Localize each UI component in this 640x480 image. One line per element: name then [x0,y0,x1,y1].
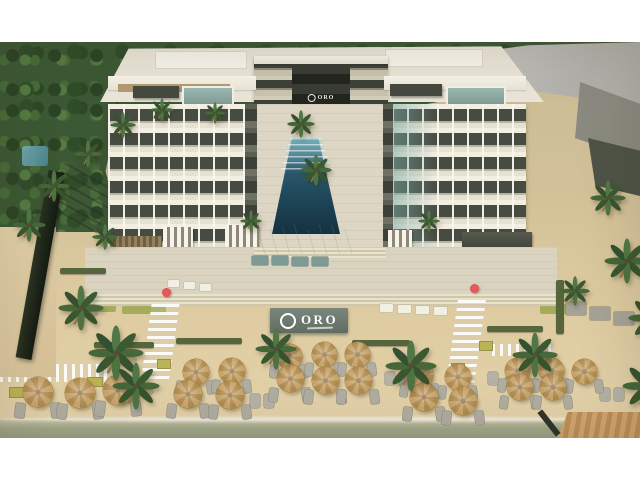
resort-rendering-photo: ORO [0,42,640,438]
palm-tree [604,270,640,318]
palms-layer [0,42,640,438]
palm-tree [97,99,123,125]
letterboxed-page: ORO [0,0,640,480]
palm-tree [407,199,429,221]
palm-tree [581,215,627,261]
palm-tree [22,154,54,186]
palm-tree [88,338,136,386]
palm-tree [489,309,535,355]
palm-tree [193,91,215,113]
palm-tree [596,334,640,386]
palm-tree [138,86,162,110]
palm-tree [0,191,29,225]
palm-tree [545,261,575,291]
palm-tree [229,199,251,221]
palm-tree [79,211,105,237]
palm-tree [359,314,411,366]
palm-tree [234,307,276,349]
palm-tree [572,162,608,198]
palm-tree [273,96,301,124]
palm-tree [60,126,88,154]
palm-tree [284,138,316,170]
